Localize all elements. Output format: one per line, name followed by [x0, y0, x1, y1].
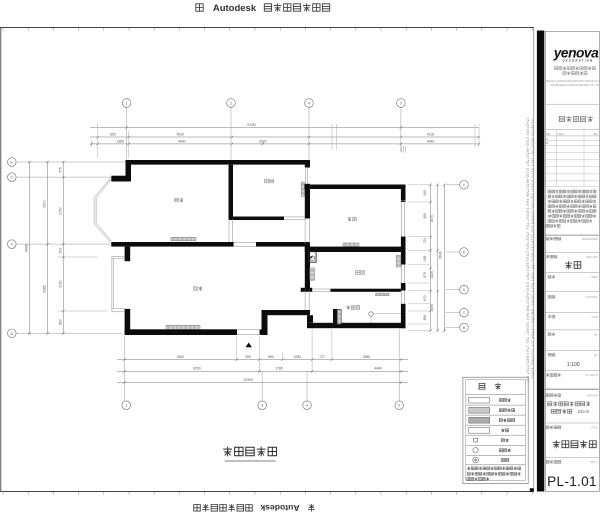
svg-text:80: 80 — [594, 332, 598, 336]
svg-text:3385: 3385 — [43, 285, 47, 293]
svg-text:1760: 1760 — [275, 367, 283, 371]
svg-text:2: 2 — [230, 102, 232, 106]
svg-text:450: 450 — [423, 256, 427, 262]
svg-text:A: A — [11, 332, 14, 336]
svg-text:4: 4 — [308, 102, 310, 106]
svg-text:605: 605 — [423, 315, 427, 321]
svg-text:580: 580 — [423, 213, 427, 219]
svg-text:727: 727 — [319, 355, 325, 359]
svg-text:1800: 1800 — [430, 304, 434, 312]
svg-text:81: 81 — [594, 353, 598, 357]
svg-text:6290: 6290 — [193, 367, 201, 371]
svg-text:4020: 4020 — [177, 132, 185, 136]
svg-text:1706: 1706 — [591, 315, 598, 319]
svg-text:C: C — [463, 311, 466, 315]
svg-text:1: 1 — [126, 102, 128, 106]
svg-text:1050: 1050 — [294, 355, 302, 359]
svg-text:Date: Date — [558, 132, 565, 136]
svg-text:1:100: 1:100 — [567, 362, 580, 368]
svg-text:5: 5 — [398, 404, 400, 408]
svg-text:Re: Re — [594, 132, 598, 136]
svg-text:1675: 1675 — [430, 215, 434, 223]
svg-text:710: 710 — [423, 238, 427, 244]
svg-text:5128-010-88517567 1001 NO.9 10: 5128-010-88517567 1001 NO.9 100037 BEIJI… — [530, 119, 534, 381]
svg-text:254372#9 (010) 88517567 (010): 254372#9 (010) 88517567 (010) 88517568 F… — [525, 117, 529, 382]
svg-text:C: C — [463, 183, 466, 187]
svg-text:E: E — [11, 161, 14, 165]
svg-text:2750: 2750 — [59, 207, 63, 215]
svg-text:NO.: NO. — [546, 132, 552, 136]
svg-text:875: 875 — [423, 272, 427, 278]
svg-text:4400: 4400 — [178, 139, 186, 143]
svg-text:2680: 2680 — [363, 355, 371, 359]
svg-text:5: 5 — [400, 102, 402, 106]
svg-text:4: 4 — [306, 404, 308, 408]
svg-text:DECORATION: DECORATION — [563, 58, 594, 62]
svg-text:PRO-09: PRO-09 — [587, 393, 598, 397]
svg-text:D: D — [10, 176, 13, 180]
svg-text:280: 280 — [423, 190, 427, 196]
svg-text:F: F — [11, 243, 14, 247]
svg-text:4040: 4040 — [427, 139, 435, 143]
svg-text:5780: 5780 — [247, 123, 255, 127]
svg-text:BEIJING YENOVA DECORATION GROU: BEIJING YENOVA DECORATION GROUP CO.,LTD — [546, 80, 600, 83]
svg-text:PL-1047S: PL-1047S — [585, 373, 598, 377]
svg-text:GYF8201: GYF8201 — [586, 295, 598, 299]
svg-text:850: 850 — [268, 355, 274, 359]
svg-text:500: 500 — [59, 248, 63, 254]
svg-text:850: 850 — [59, 319, 63, 325]
svg-text:3: 3 — [261, 404, 263, 408]
svg-text:yenova: yenova — [553, 45, 599, 60]
svg-text:12390: 12390 — [243, 378, 253, 382]
svg-text:PL-1.01: PL-1.01 — [547, 474, 597, 489]
svg-text:E: E — [463, 251, 466, 255]
svg-text:650: 650 — [110, 132, 116, 136]
svg-text:Autodesk: Autodesk — [260, 503, 299, 513]
svg-text:17/T2: 17/T2 — [590, 426, 598, 430]
svg-text:D: D — [463, 288, 466, 292]
svg-text:4630: 4630 — [177, 355, 185, 359]
svg-text:6685: 6685 — [25, 244, 29, 252]
svg-text:1525: 1525 — [430, 271, 434, 279]
svg-text:813: 813 — [423, 295, 427, 301]
svg-text:5646: 5646 — [439, 251, 443, 259]
svg-text:2021240648: 2021240648 — [582, 237, 598, 241]
svg-text:Autodesk: Autodesk — [213, 3, 257, 14]
svg-text:4130: 4130 — [427, 132, 435, 136]
svg-text:1001-240: 1001-240 — [586, 255, 598, 259]
svg-text:JPL-1: JPL-1 — [590, 460, 598, 464]
svg-text:575: 575 — [59, 167, 63, 173]
svg-text:B: B — [463, 326, 466, 330]
svg-text:1: 1 — [125, 404, 127, 408]
svg-text:ENGINEERING DESIGN BRANCH CO.,: ENGINEERING DESIGN BRANCH CO.,LTD — [550, 84, 600, 87]
svg-text:3020: 3020 — [259, 139, 267, 143]
svg-text:1380: 1380 — [116, 139, 124, 143]
svg-text:2050: 2050 — [59, 280, 63, 288]
svg-text:310 m: 310 m — [578, 409, 590, 414]
svg-text:2802: 2802 — [591, 275, 598, 279]
svg-text:B.: B. — [546, 141, 549, 145]
svg-text:900: 900 — [245, 355, 251, 359]
svg-text:4440: 4440 — [374, 367, 382, 371]
svg-text:3300: 3300 — [43, 200, 47, 208]
